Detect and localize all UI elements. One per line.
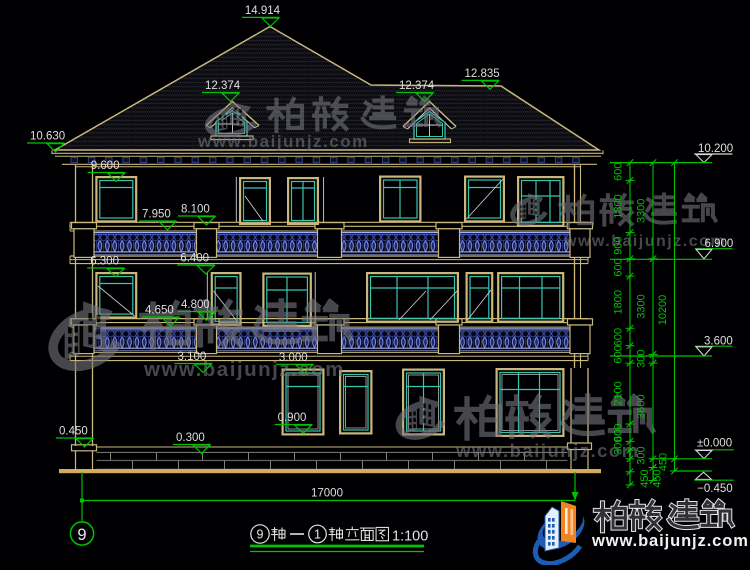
svg-text:7.950: 7.950	[142, 209, 171, 221]
svg-text:300: 300	[613, 437, 625, 455]
svg-text:6.300: 6.300	[90, 256, 119, 268]
svg-text:450: 450	[658, 453, 670, 471]
svg-text:12.374: 12.374	[399, 80, 435, 92]
svg-text:14.914: 14.914	[245, 5, 281, 17]
svg-text:4.800: 4.800	[181, 299, 210, 311]
svg-text:3300: 3300	[636, 199, 648, 223]
svg-text:0.300: 0.300	[176, 432, 205, 444]
svg-text:600: 600	[613, 345, 625, 363]
svg-text:www.baijunjz.com: www.baijunjz.com	[563, 233, 726, 250]
svg-text:12.835: 12.835	[465, 68, 500, 80]
svg-text:±0.000: ±0.000	[697, 438, 732, 450]
svg-text:300: 300	[636, 350, 648, 368]
svg-text:www.baijunjz.com: www.baijunjz.com	[591, 532, 749, 550]
svg-text:www.baijunjz.com: www.baijunjz.com	[143, 358, 345, 381]
svg-text:3.000: 3.000	[279, 352, 308, 364]
svg-text:www.baijunjz.com: www.baijunjz.com	[197, 132, 369, 151]
svg-text:1800: 1800	[613, 290, 625, 314]
svg-text:1: 1	[314, 528, 321, 542]
svg-text:600: 600	[613, 258, 625, 276]
svg-text:10.630: 10.630	[30, 131, 65, 143]
svg-text:9: 9	[77, 526, 86, 544]
svg-text:3.100: 3.100	[178, 351, 207, 363]
svg-text:2100: 2100	[613, 381, 625, 405]
svg-text:6.400: 6.400	[180, 253, 209, 265]
svg-text:900: 900	[613, 236, 625, 254]
svg-text:−0.450: −0.450	[697, 483, 733, 495]
svg-text:300: 300	[636, 446, 648, 464]
svg-text:9: 9	[257, 528, 264, 542]
svg-text:8.100: 8.100	[181, 204, 210, 216]
svg-text:0.900: 0.900	[278, 412, 307, 424]
svg-text:450: 450	[639, 469, 651, 487]
svg-text:17000: 17000	[311, 488, 343, 500]
svg-text:1:100: 1:100	[392, 529, 428, 545]
svg-text:12.374: 12.374	[205, 80, 241, 92]
svg-text:10200: 10200	[657, 295, 669, 326]
svg-text:9.600: 9.600	[91, 160, 120, 172]
svg-text:600: 600	[613, 163, 625, 181]
svg-text:1800: 1800	[613, 194, 625, 218]
svg-text:0.450: 0.450	[59, 426, 88, 438]
svg-text:3300: 3300	[636, 294, 648, 318]
svg-text:600: 600	[613, 328, 625, 346]
svg-text:4.650: 4.650	[145, 305, 174, 317]
svg-text:3600: 3600	[636, 394, 648, 418]
svg-text:10.200: 10.200	[698, 143, 733, 155]
